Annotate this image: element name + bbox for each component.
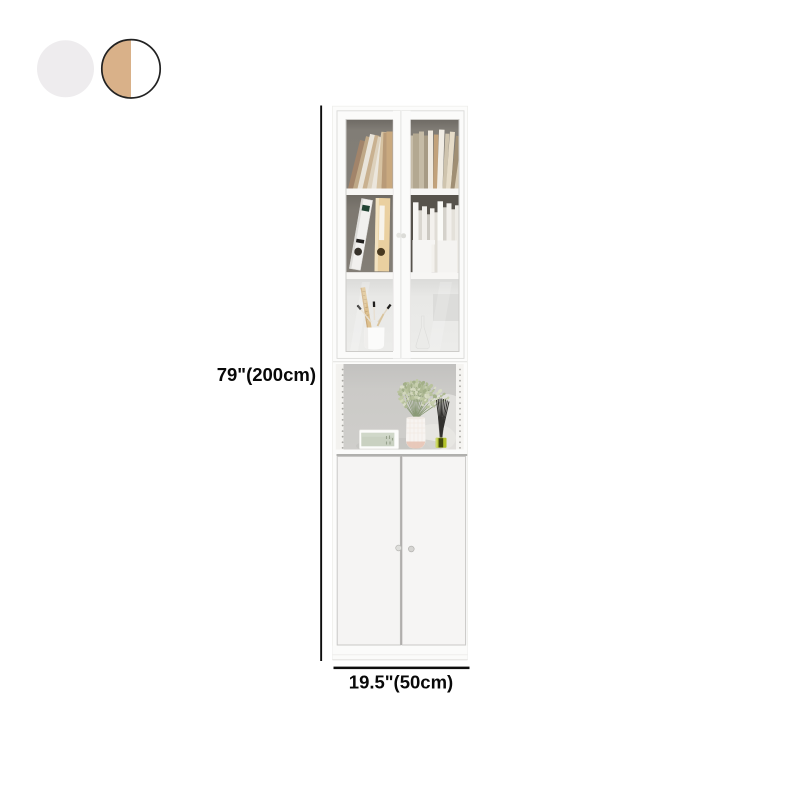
svg-text:79"(200cm): 79"(200cm) xyxy=(217,364,316,385)
svg-text:19.5"(50cm): 19.5"(50cm) xyxy=(349,672,453,693)
